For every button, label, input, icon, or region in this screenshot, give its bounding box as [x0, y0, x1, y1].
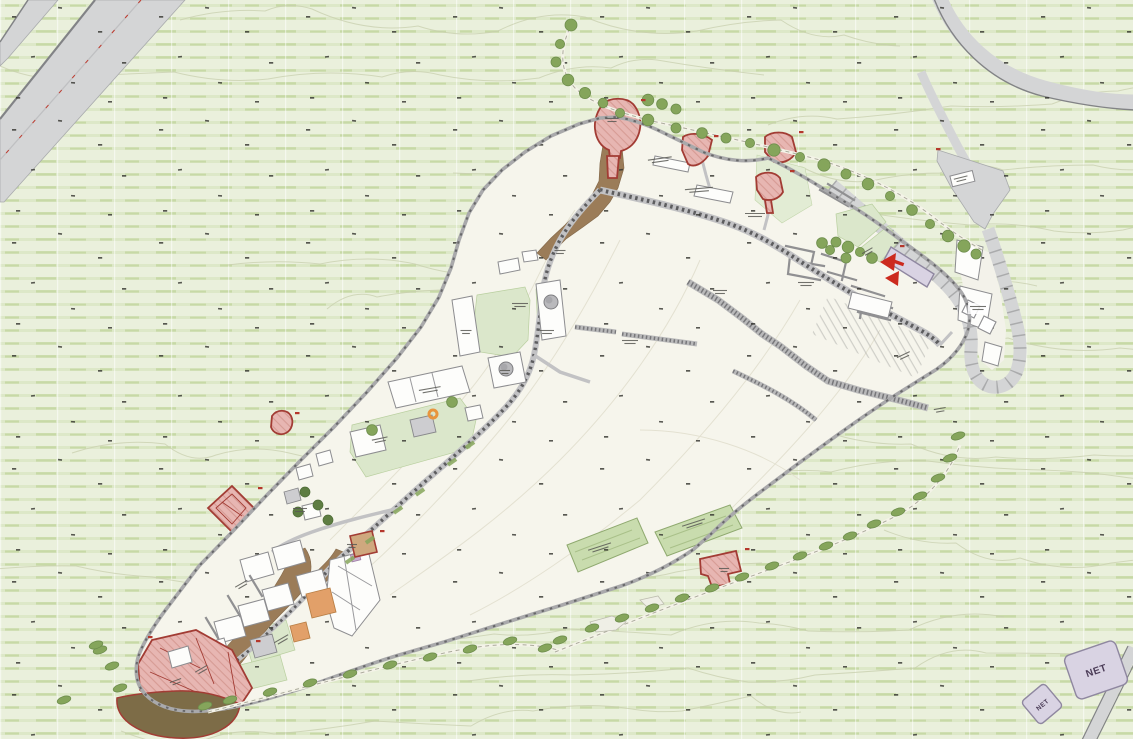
tree-icon: [817, 238, 828, 249]
tree-icon: [907, 205, 918, 216]
red-annotation-tick: [256, 640, 261, 642]
tree-icon: [300, 487, 310, 497]
site-plan-map[interactable]: NET NET: [0, 0, 1133, 739]
red-annotation-tick: [745, 548, 750, 550]
red-annotation-tick: [714, 135, 719, 137]
tree-icon: [671, 123, 681, 133]
red-annotation-tick: [380, 530, 385, 532]
west-wall-turret: [271, 411, 292, 434]
tree-icon: [841, 253, 851, 263]
north-inner-tower: [756, 173, 783, 201]
tree-icon: [745, 138, 754, 147]
north-inner-tower-stem: [765, 200, 773, 213]
red-annotation-tick: [900, 245, 905, 247]
northwest-gate-tower-neck: [607, 156, 619, 178]
tree-icon: [367, 425, 378, 436]
label-smudge: [968, 303, 988, 314]
site-plan-canvas: NET NET: [0, 0, 1133, 739]
spot-elevations: [0, 0, 1133, 739]
tree-icon: [598, 98, 608, 108]
tree-icon: [555, 39, 564, 48]
tree-icon: [313, 500, 323, 510]
red-annotation-tick: [258, 487, 263, 489]
tree-icon: [657, 99, 668, 110]
red-annotation-tick: [799, 131, 804, 133]
tree-icon: [831, 237, 841, 247]
tree-icon: [323, 515, 333, 525]
tree-icon: [795, 152, 804, 161]
tree-icon: [825, 245, 834, 254]
tree-icon: [925, 219, 934, 228]
tree-icon: [855, 247, 864, 256]
tree-icon: [642, 114, 654, 126]
tree-icon: [958, 240, 970, 252]
tree-icon: [942, 230, 954, 242]
tree-icon: [818, 159, 830, 171]
tree-icon: [721, 133, 731, 143]
tree-icon: [565, 19, 577, 31]
tree-icon: [615, 108, 624, 117]
red-annotation-tick: [641, 99, 646, 101]
tree-icon: [841, 169, 851, 179]
tree-icon: [885, 191, 894, 200]
tree-icon: [971, 249, 981, 259]
tree-icon: [551, 57, 561, 67]
tree-icon: [447, 397, 458, 408]
red-annotation-tick: [936, 148, 941, 150]
tree-icon: [842, 241, 854, 253]
tree-icon: [862, 178, 874, 190]
tree-icon: [768, 144, 780, 156]
red-annotation-tick: [148, 636, 153, 638]
red-annotation-tick: [790, 170, 795, 172]
tree-icon: [562, 74, 574, 86]
tree-icon: [579, 87, 590, 98]
red-annotation-tick: [295, 412, 300, 414]
tree-icon: [671, 104, 681, 114]
tree-icon: [697, 128, 708, 139]
